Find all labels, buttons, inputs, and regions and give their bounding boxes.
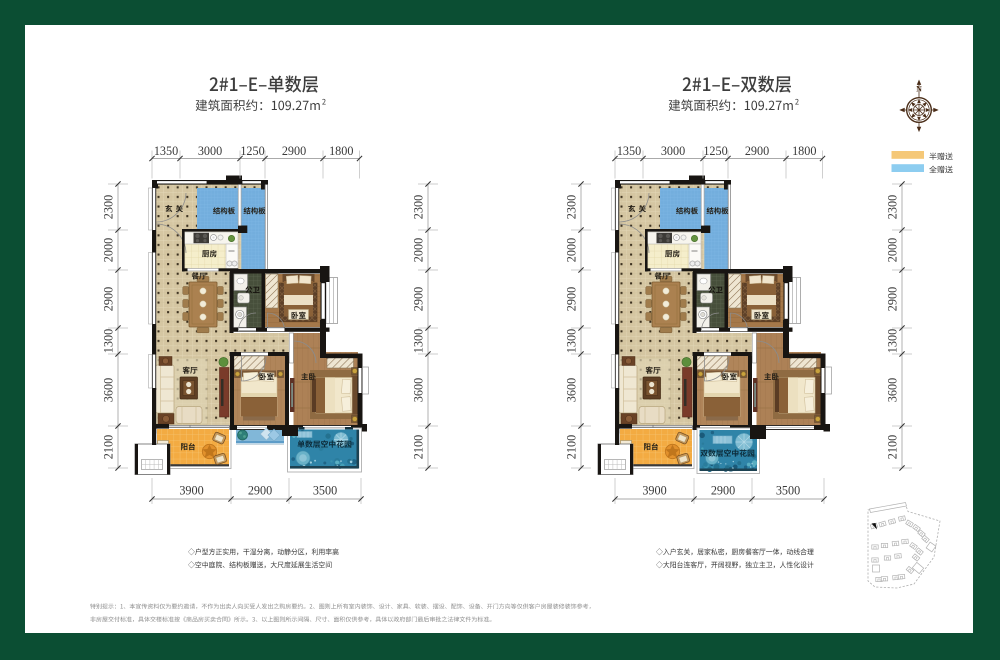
svg-text:1300: 1300 <box>102 329 116 353</box>
svg-text:1800: 1800 <box>329 144 353 158</box>
svg-text:3600: 3600 <box>565 378 579 402</box>
svg-text:1250: 1250 <box>703 144 727 158</box>
svg-text:2300: 2300 <box>565 195 579 219</box>
svg-text:1800: 1800 <box>792 144 816 158</box>
svg-text:2900: 2900 <box>102 287 116 311</box>
svg-text:2000: 2000 <box>412 238 426 262</box>
svg-text:1350: 1350 <box>154 144 178 158</box>
svg-text:3000: 3000 <box>661 144 685 158</box>
svg-text:2900: 2900 <box>886 287 900 311</box>
svg-text:3600: 3600 <box>886 378 900 402</box>
svg-text:2900: 2900 <box>282 144 306 158</box>
svg-text:3600: 3600 <box>102 378 116 402</box>
svg-text:2100: 2100 <box>102 435 116 459</box>
svg-text:3500: 3500 <box>776 484 800 498</box>
svg-text:3500: 3500 <box>313 484 337 498</box>
svg-text:1300: 1300 <box>886 329 900 353</box>
svg-text:3000: 3000 <box>198 144 222 158</box>
svg-text:2000: 2000 <box>886 238 900 262</box>
svg-text:1300: 1300 <box>412 329 426 353</box>
svg-text:2900: 2900 <box>412 287 426 311</box>
svg-text:1250: 1250 <box>240 144 264 158</box>
svg-text:N: N <box>916 85 922 94</box>
svg-text:2000: 2000 <box>565 238 579 262</box>
svg-text:3600: 3600 <box>412 378 426 402</box>
svg-text:2900: 2900 <box>745 144 769 158</box>
svg-text:2900: 2900 <box>711 484 735 498</box>
svg-text:2900: 2900 <box>565 287 579 311</box>
svg-text:3900: 3900 <box>642 484 666 498</box>
svg-text:2300: 2300 <box>886 195 900 219</box>
svg-text:1300: 1300 <box>565 329 579 353</box>
svg-text:1350: 1350 <box>617 144 641 158</box>
svg-text:2000: 2000 <box>102 238 116 262</box>
svg-text:2100: 2100 <box>565 435 579 459</box>
svg-text:3900: 3900 <box>179 484 203 498</box>
svg-text:2300: 2300 <box>412 195 426 219</box>
svg-text:2900: 2900 <box>248 484 272 498</box>
svg-text:2300: 2300 <box>102 195 116 219</box>
svg-text:2100: 2100 <box>886 435 900 459</box>
svg-text:2100: 2100 <box>412 435 426 459</box>
